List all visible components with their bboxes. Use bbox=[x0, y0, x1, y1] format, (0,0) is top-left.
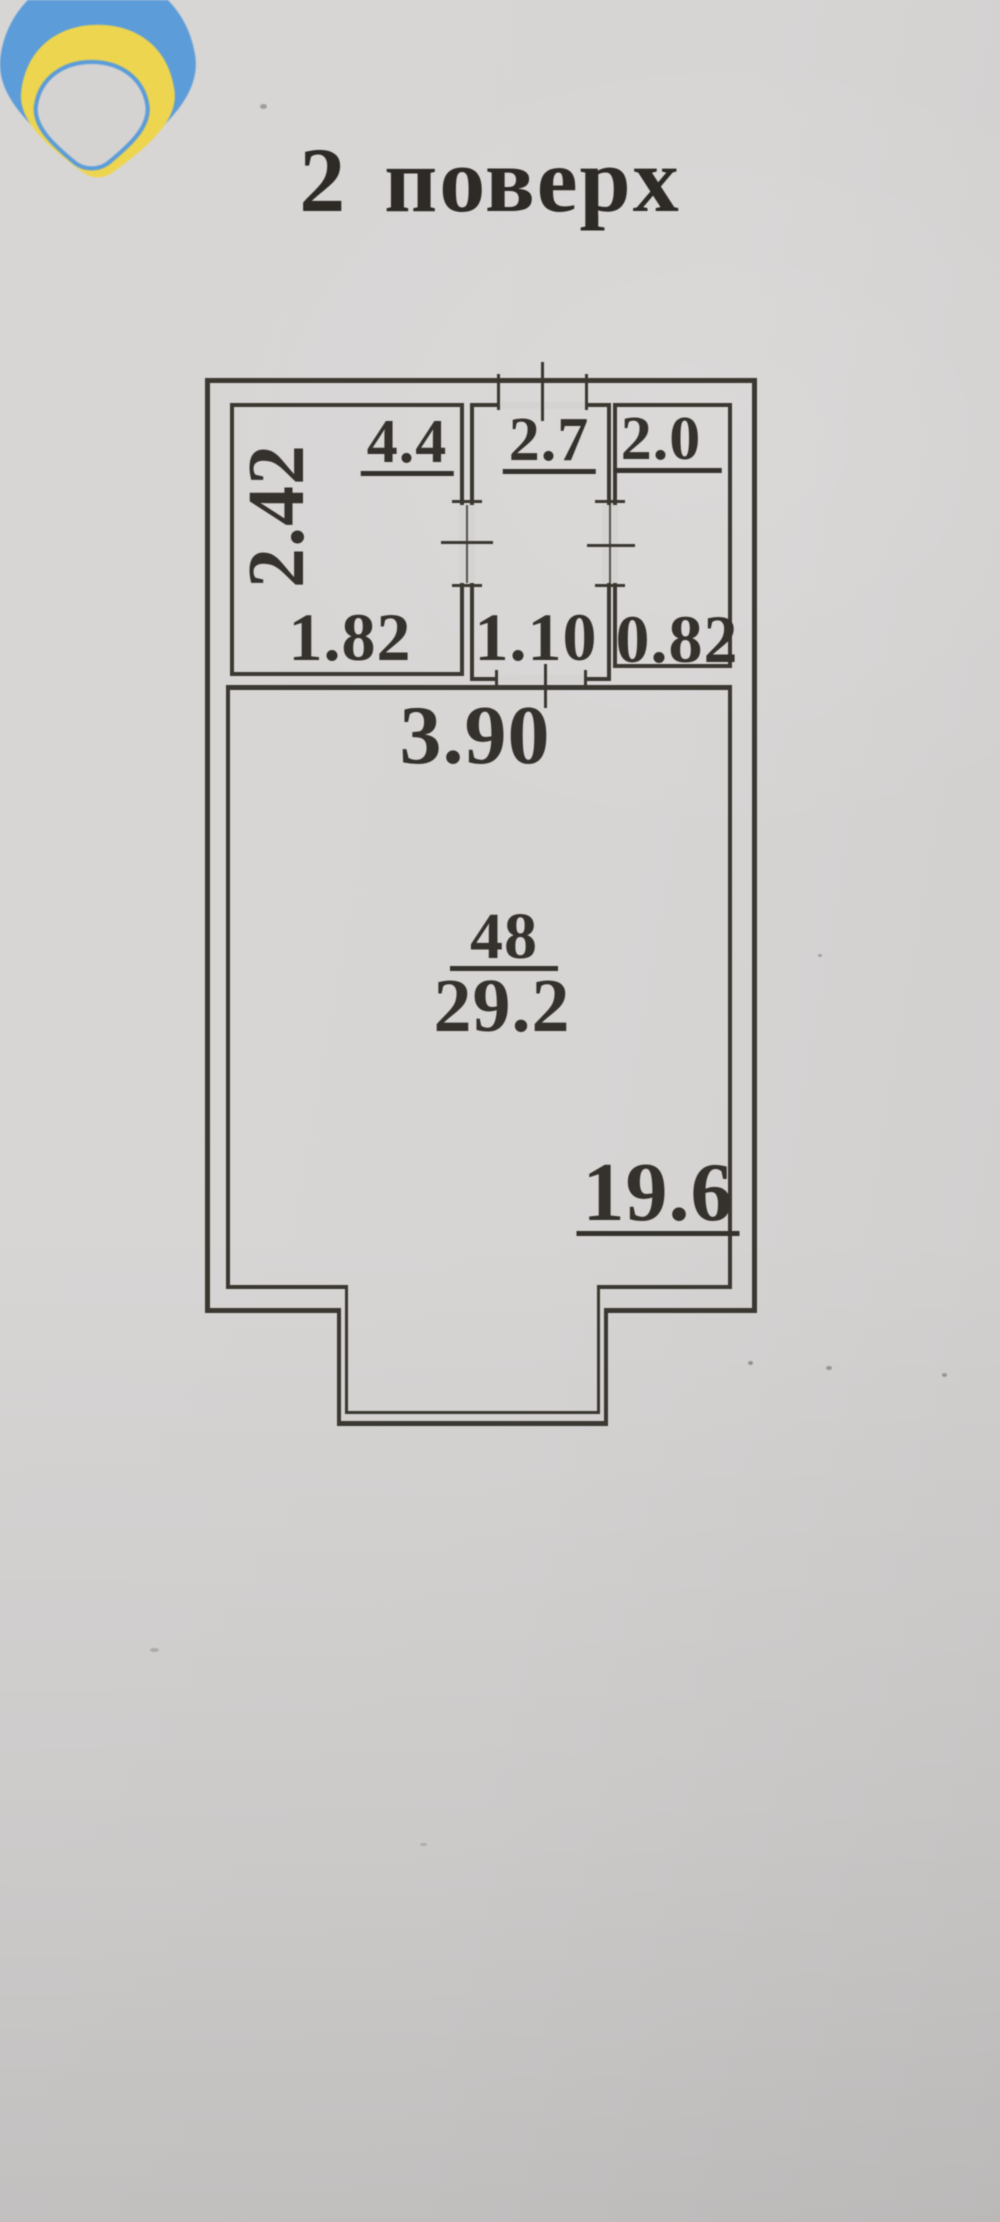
main-room-number-label: 48 bbox=[450, 908, 558, 971]
floor-plan-drawing: 4.4 2.7 2.0 2.42 1.82 1.10 0.82 3.90 48 … bbox=[0, 0, 1000, 1500]
tick-div23-center bbox=[587, 544, 635, 547]
room1-height-dim-label: 2.42 bbox=[237, 444, 317, 588]
room2-width-dim-label: 1.10 bbox=[475, 603, 598, 671]
tick-div12-center bbox=[441, 541, 493, 544]
paper-speck bbox=[150, 1648, 159, 1652]
notch-inner-right bbox=[597, 1289, 600, 1414]
wall-outer-left bbox=[205, 378, 210, 1313]
paper-speck bbox=[748, 1361, 753, 1365]
main-room-bottom-left bbox=[226, 1285, 348, 1289]
main-room-width-dim-label: 3.90 bbox=[400, 694, 551, 778]
lower-area-label: 19.6 bbox=[577, 1155, 740, 1236]
door-opening-room2-bottom bbox=[498, 675, 586, 683]
tick-div12-bottom bbox=[452, 584, 482, 587]
scanned-floor-plan-page: 2 поверх bbox=[0, 0, 1000, 2222]
notch-outer-right bbox=[604, 1313, 608, 1426]
notch-inner-left bbox=[345, 1289, 348, 1414]
room1-area-label: 4.4 bbox=[361, 415, 454, 476]
main-room-bottom-right bbox=[597, 1285, 732, 1289]
paper-speck bbox=[826, 1366, 832, 1370]
wall-outer-top bbox=[205, 378, 757, 383]
room3-area-label: 2.0 bbox=[615, 412, 722, 473]
notch-inner-bottom bbox=[345, 1411, 600, 1414]
notch-outer-bottom bbox=[337, 1421, 608, 1426]
room3-width-dim-label: 0.82 bbox=[616, 605, 739, 673]
notch-outer-left bbox=[337, 1313, 341, 1426]
wall-outer-bottom-left bbox=[205, 1308, 341, 1313]
wall-outer-right bbox=[752, 378, 757, 1313]
wall-outer-bottom-right bbox=[604, 1308, 757, 1313]
divider-1-2-threshold bbox=[466, 505, 468, 583]
tick-div23-bottom bbox=[595, 584, 625, 587]
tick-div12-top bbox=[452, 500, 482, 503]
tick-div23-top bbox=[595, 500, 625, 503]
room1-width-dim-label: 1.82 bbox=[289, 603, 412, 671]
room2-area-label: 2.7 bbox=[503, 413, 596, 474]
paper-speck bbox=[818, 954, 822, 957]
tick-top-window-left bbox=[497, 374, 500, 410]
paper-speck bbox=[942, 1373, 947, 1377]
paper-speck bbox=[260, 104, 267, 109]
main-room-area-label: 29.2 bbox=[434, 968, 571, 1044]
tick-top-window-right bbox=[585, 374, 588, 410]
paper-speck bbox=[420, 1843, 427, 1846]
